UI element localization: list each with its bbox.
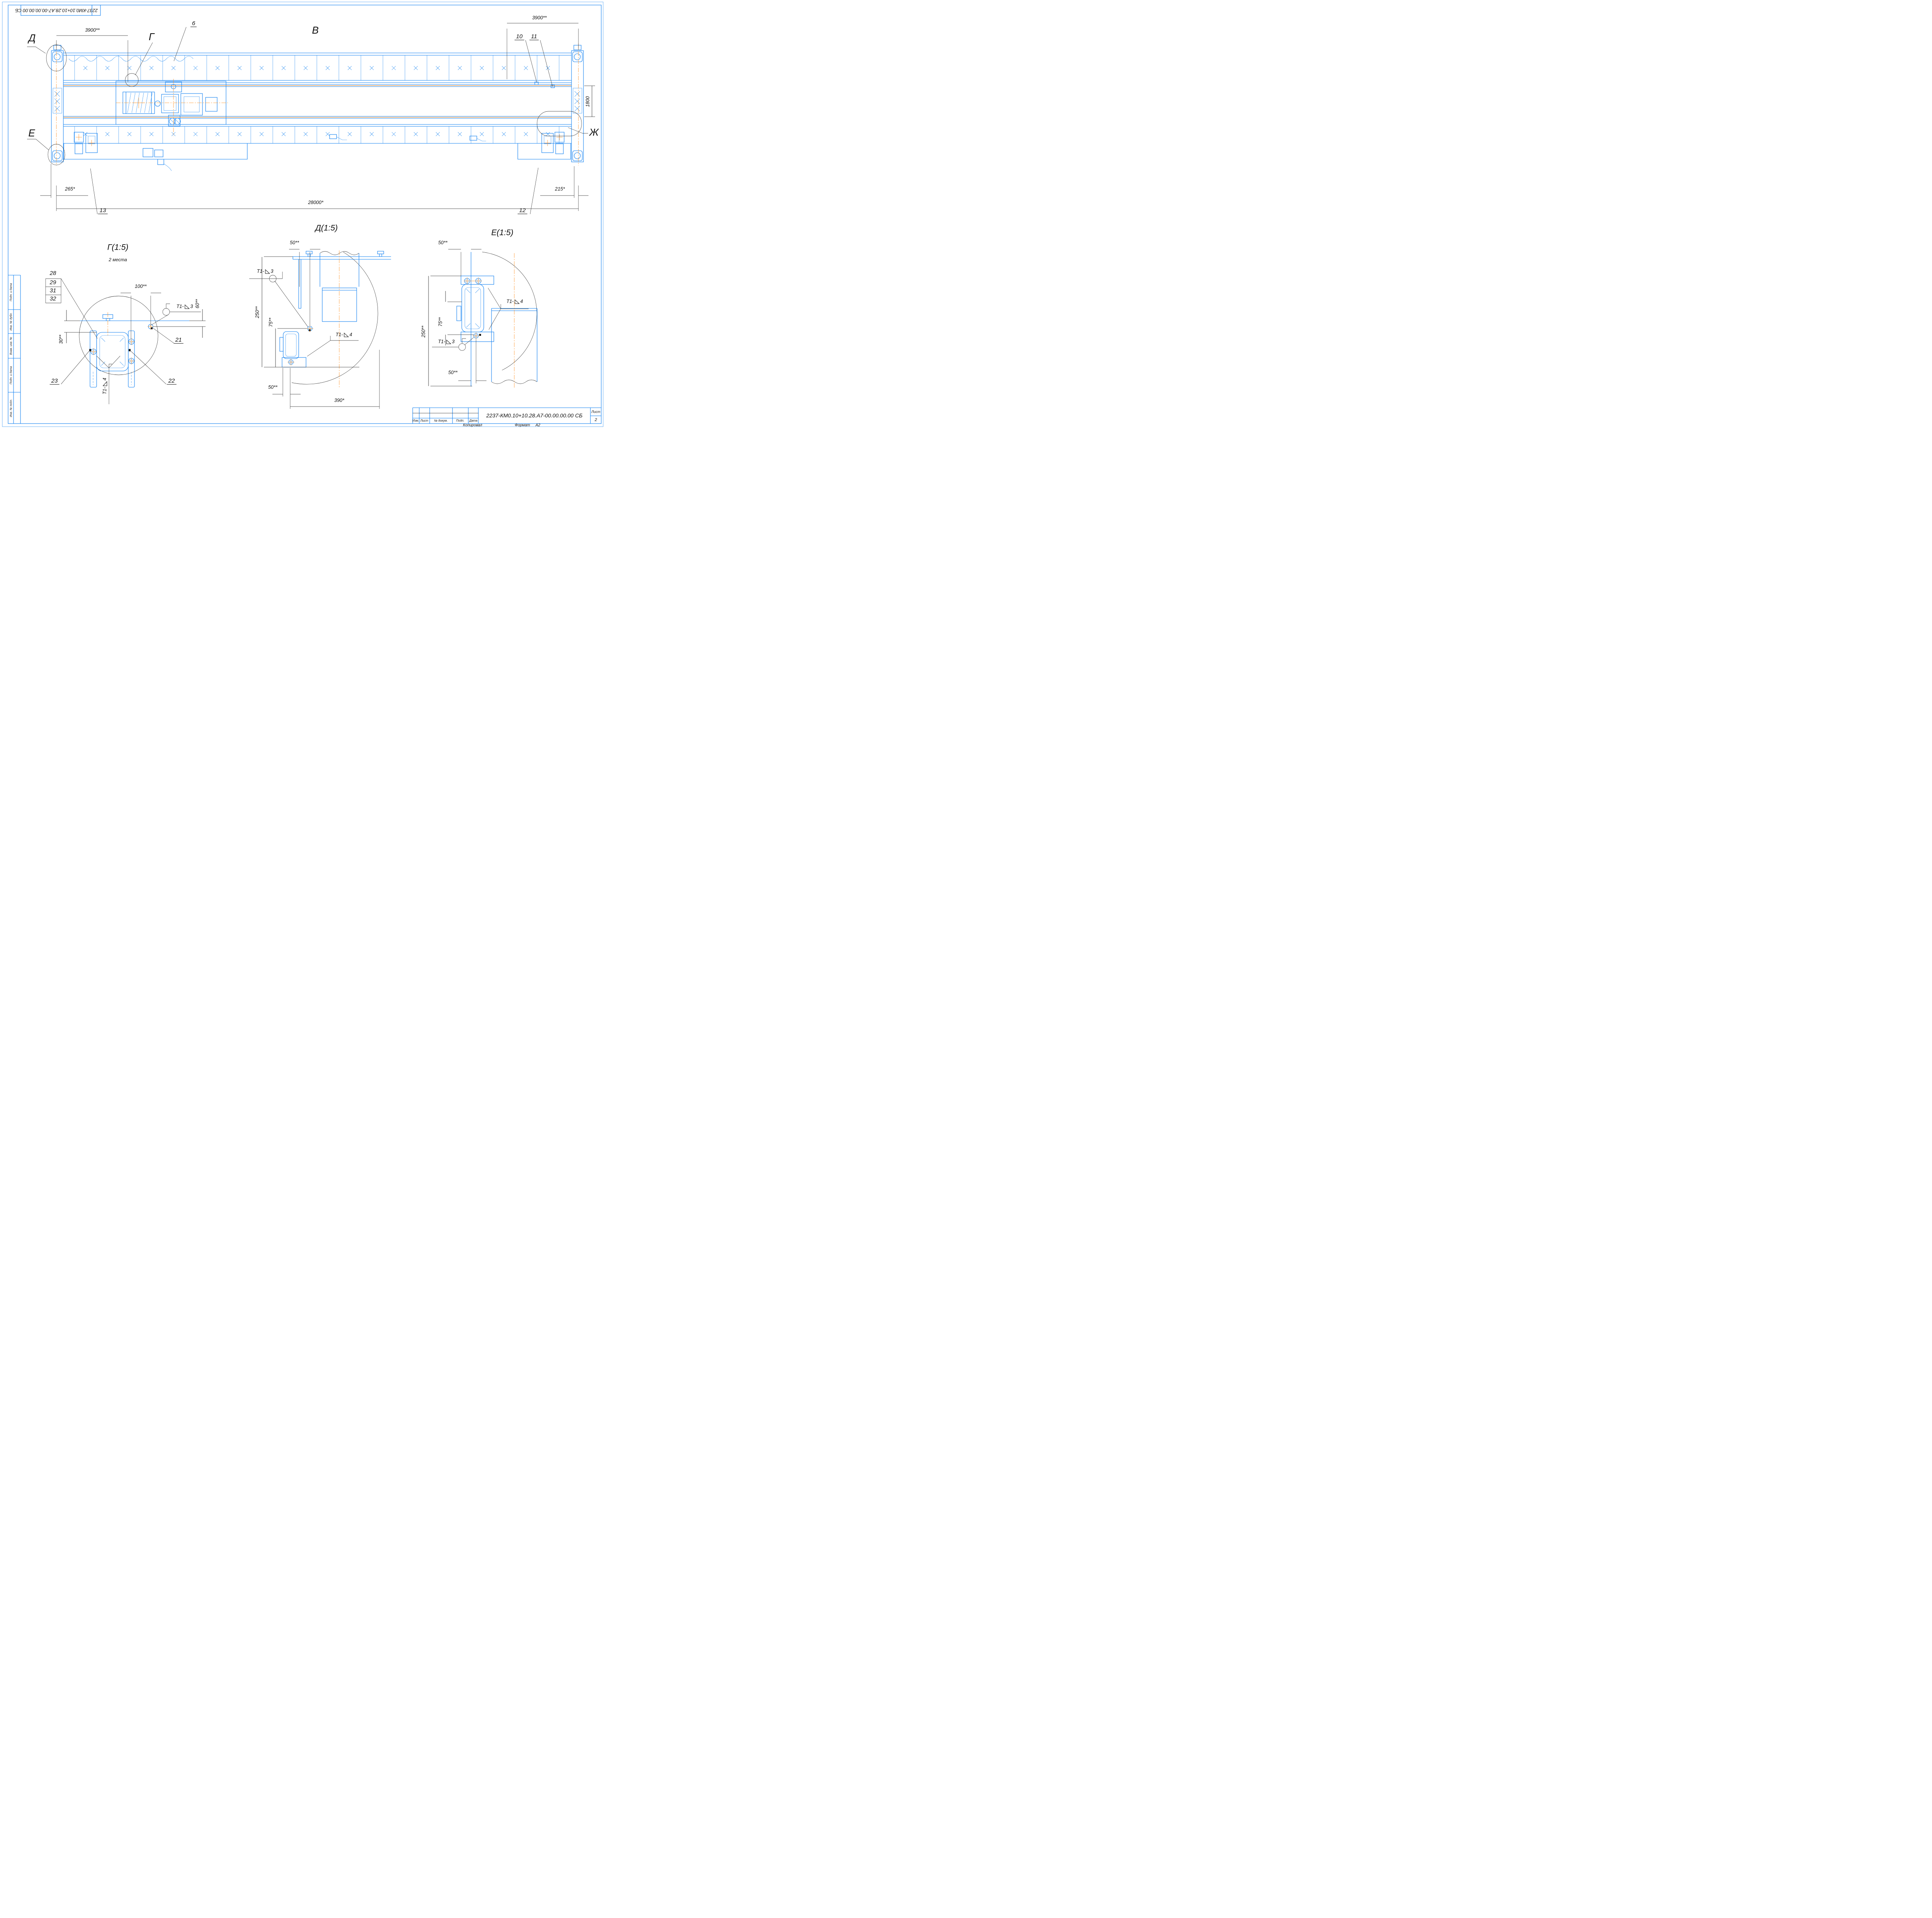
titleblock-col-list: Лист (420, 419, 429, 422)
weld-mark-d-t1-3: Т1- 3 (257, 269, 274, 274)
weld-mark-d-t1-4: Т1- 4 (336, 332, 352, 337)
callout-13: 13 (98, 208, 108, 214)
titleblock-sheet-label: Лист (591, 410, 600, 414)
weld-grade: 4 (349, 332, 352, 337)
view-label-zh: Ж (589, 127, 599, 137)
dim-g-60: 60** (195, 299, 200, 308)
centerlines (56, 43, 578, 165)
end-truck-left (51, 45, 63, 162)
callout-32: 32 (50, 296, 56, 302)
dim-g-100: 100** (135, 284, 147, 289)
view-label-v: В (312, 25, 318, 35)
weld-flag-icon (446, 339, 451, 344)
dim-e-250: 250** (421, 326, 426, 338)
dim-e-50-top: 50** (438, 240, 447, 245)
weld-grade: 3 (190, 304, 193, 309)
dim-g-30: 30** (59, 335, 64, 344)
weld-flag-icon (514, 299, 519, 304)
dim-span-right: 3900** (532, 15, 547, 20)
dim-d-250: 250** (255, 306, 260, 318)
weld-prefix: Т1- (102, 387, 107, 395)
callout-10: 10 (515, 34, 524, 40)
dim-gauge: 1800 (585, 96, 590, 107)
callout-6: 6 (190, 20, 197, 27)
weld-mark-g-t1-4: Т1- 4 (102, 378, 107, 395)
titleblock-col-docnum: № докум. (434, 419, 447, 422)
callout-29: 29 (50, 280, 56, 286)
bracing-marks (54, 66, 580, 136)
titleblock-col-izm: Изм. (412, 419, 419, 422)
weld-flag-icon (265, 269, 270, 274)
weld-prefix: Т1- (177, 304, 184, 309)
sidebar-label-vzam-inv: Взам. инв. № (9, 337, 12, 355)
weld-grade: 3 (270, 269, 273, 274)
dim-span-left: 3900** (85, 28, 100, 33)
dim-d-50-top: 50** (290, 240, 299, 245)
detail-e-title: Е(1:5) (491, 229, 513, 237)
weld-prefix: Т1- (336, 332, 343, 337)
detail-d-linework (280, 250, 391, 388)
weld-flag-icon (344, 332, 349, 337)
callout-21: 21 (174, 337, 184, 344)
stamp-doc-number: 2237-КМ0.10+10.28.А7-00.00.00.00 СБ (15, 8, 97, 13)
weld-grade: 4 (102, 378, 107, 381)
callout-31: 31 (50, 288, 56, 294)
drawing-sheet: 2237-КМ0.10+10.28.А7-00.00.00.00 СБ В Д … (0, 0, 606, 429)
sidebar-label-podp-2: Подп. и дата (9, 366, 12, 385)
footer-format-label: Формат (515, 424, 530, 427)
main-dimensions (27, 23, 595, 214)
weld-flag-icon (184, 304, 189, 309)
dim-offset-right: 215* (555, 187, 565, 192)
weld-prefix: Т1- (257, 269, 264, 274)
dim-e-75: 75** (438, 317, 443, 327)
weld-flag-icon (102, 381, 107, 386)
detail-g-note: 2 места (109, 257, 127, 262)
drawing-linework (0, 0, 606, 429)
titleblock-doc-number: 2237-КМ0.10+10.28.А7-00.00.00.00 СБ (486, 413, 583, 418)
callout-23: 23 (50, 378, 60, 385)
dim-e-50-bottom: 50** (448, 370, 457, 375)
detail-d-title: Д(1:5) (315, 224, 338, 232)
dim-d-75: 75** (269, 318, 274, 327)
dim-offset-left: 265* (65, 187, 75, 192)
footer-copied: Копировал (463, 424, 482, 427)
weld-prefix: Т1- (438, 339, 446, 344)
callout-11: 11 (529, 34, 539, 40)
detail-e-linework (457, 252, 537, 388)
weld-mark-e-t1-4: Т1- 4 (507, 299, 523, 304)
detail-g-linework (79, 296, 189, 387)
view-label-e: Е (28, 128, 35, 138)
dim-d-390: 390* (334, 398, 344, 403)
titleblock-col-data: Дата (469, 419, 477, 422)
footer-format-value: А2 (536, 424, 540, 427)
trolley-assembly (116, 81, 226, 126)
detail-e-dimensions (429, 249, 529, 386)
titleblock-sheet-number: 2 (595, 418, 597, 422)
dim-total-span: 28000* (308, 200, 323, 205)
girder-ribs (75, 55, 559, 143)
bridge-girders (63, 53, 571, 159)
sidebar-label-podp-1: Подп. и дата (9, 283, 12, 301)
end-truck-right (571, 45, 583, 162)
sidebar-label-inv-dubl: Инв. № дубл. (9, 313, 12, 330)
weld-mark-g-t1-3: Т1- 3 (177, 304, 193, 309)
sheet-frame (2, 2, 603, 427)
detail-boundaries (46, 45, 582, 165)
titleblock-col-podp: Подп. (456, 419, 464, 422)
callout-22: 22 (167, 378, 177, 385)
weld-grade: 4 (520, 299, 523, 304)
view-label-g: Г (149, 32, 154, 42)
weld-grade: 3 (452, 339, 454, 344)
weld-prefix: Т1- (507, 299, 514, 304)
detail-g-title: Г(1:5) (107, 243, 129, 252)
sidebar-label-inv-podl: Инв. № подл. (9, 399, 12, 417)
weld-mark-e-t1-3: Т1- 3 (438, 339, 455, 344)
callout-12: 12 (518, 208, 527, 214)
dim-d-50-bottom: 50** (268, 385, 277, 390)
callout-28: 28 (50, 271, 56, 276)
view-label-d: Д (29, 33, 36, 43)
